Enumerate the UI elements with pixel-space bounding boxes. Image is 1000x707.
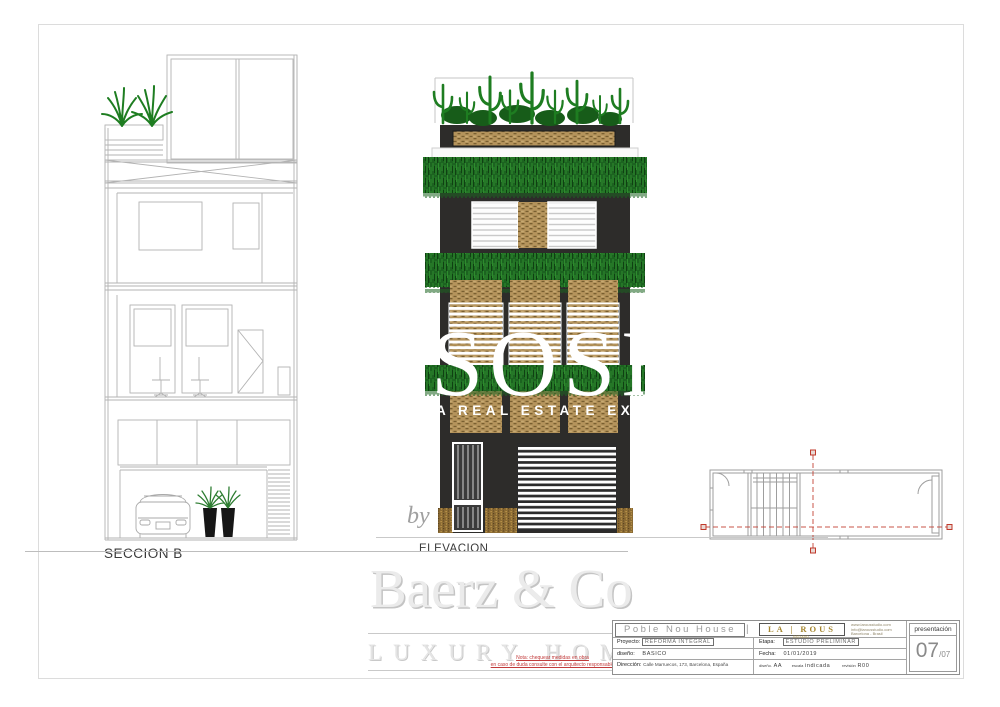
direccion-value: Calle Marruecos, 173, Barcelona, España <box>643 662 728 667</box>
contact-info: www.larousstudio.com info@larousstudio.c… <box>851 623 905 637</box>
baerz-co-watermark: Baerz & Co <box>370 557 633 620</box>
plan-walls <box>710 470 942 539</box>
real-estate-tagline-watermark: A REAL ESTATE EXPER <box>436 403 662 418</box>
by-watermark: by <box>407 503 430 530</box>
roof-plants <box>434 73 628 126</box>
section-penthouse <box>167 55 297 163</box>
etapa-value: ESTUDIO PRELIMINAR <box>783 638 859 646</box>
plan-drawing <box>700 448 955 558</box>
chair-icon <box>152 357 209 397</box>
watermark-rule-top <box>25 551 628 552</box>
project-title: Poble Nou House <box>615 623 745 637</box>
ground-floor <box>438 443 633 533</box>
drawing-sheet: SECCION B ELEVACION SOSH A REAL ESTATE E… <box>0 0 1000 707</box>
section-b-label: SECCION B <box>104 546 183 561</box>
sheet-number: 07/07 <box>910 636 956 670</box>
veg-band-1 <box>423 157 647 199</box>
proyecto-label: Proyecto: <box>617 639 640 645</box>
title-block-rule <box>613 648 906 649</box>
garage-door <box>517 443 617 531</box>
presentacion-label: presentación <box>910 624 956 636</box>
revision-value: R00 <box>857 663 869 669</box>
revision-label: revisión <box>842 663 856 668</box>
title-divider: | <box>746 624 749 635</box>
elevation-drawing <box>405 55 665 540</box>
contact-city: Barcelona - Brasil <box>851 632 905 637</box>
elevation-baseline <box>376 537 828 538</box>
potted-plants <box>196 487 240 537</box>
stairs-icon <box>268 470 290 534</box>
section-roof-planter <box>105 125 163 155</box>
watermark-rule-bottom <box>368 670 630 671</box>
car-icon <box>136 495 190 539</box>
parapet-brick-strip <box>453 131 615 146</box>
etapa-label: Etapa: <box>759 639 775 645</box>
gold-strip <box>438 508 453 533</box>
section-garage <box>105 420 297 540</box>
middle-floor-windows <box>472 202 596 248</box>
fecha-label: Fecha: <box>759 651 776 657</box>
diseno-label: diseño: <box>617 651 635 657</box>
sosh-watermark: SOSH <box>431 316 643 412</box>
section-b-drawing <box>100 50 305 545</box>
elevacion-label: ELEVACION <box>419 543 488 555</box>
dibujo-value: AA <box>774 663 783 669</box>
red-note-line1: Nota: chequear medidas en obra <box>516 655 589 661</box>
title-block: Poble Nou House | LA | ROUS ESTUDIO www.… <box>612 620 960 675</box>
presentation-box: presentación 07/07 <box>909 623 957 672</box>
escala-label: escala <box>792 663 804 668</box>
entry-door <box>453 443 482 531</box>
gold-strip <box>617 508 633 533</box>
watermark-rule-mid <box>368 633 623 634</box>
proyecto-value: REFORMA INTEGRAL <box>642 638 714 646</box>
sheet-number-value: 07 <box>916 639 939 662</box>
sheet-total-value: /07 <box>939 650 950 659</box>
fecha-value: 01/01/2019 <box>784 651 818 657</box>
roof-plants <box>102 86 172 126</box>
direccion-label: Dirección: <box>617 662 641 668</box>
section-floor-3 <box>105 188 297 290</box>
gold-strip <box>485 508 517 533</box>
dibujo-label: diseño. <box>759 663 772 668</box>
title-block-rule <box>613 659 906 660</box>
escala-value: indicada <box>805 663 830 669</box>
diseno-value: BASICO <box>642 651 666 657</box>
red-note-line2: en caso de duda consulte con el arquitec… <box>491 662 615 668</box>
section-floor-2 <box>105 295 297 400</box>
